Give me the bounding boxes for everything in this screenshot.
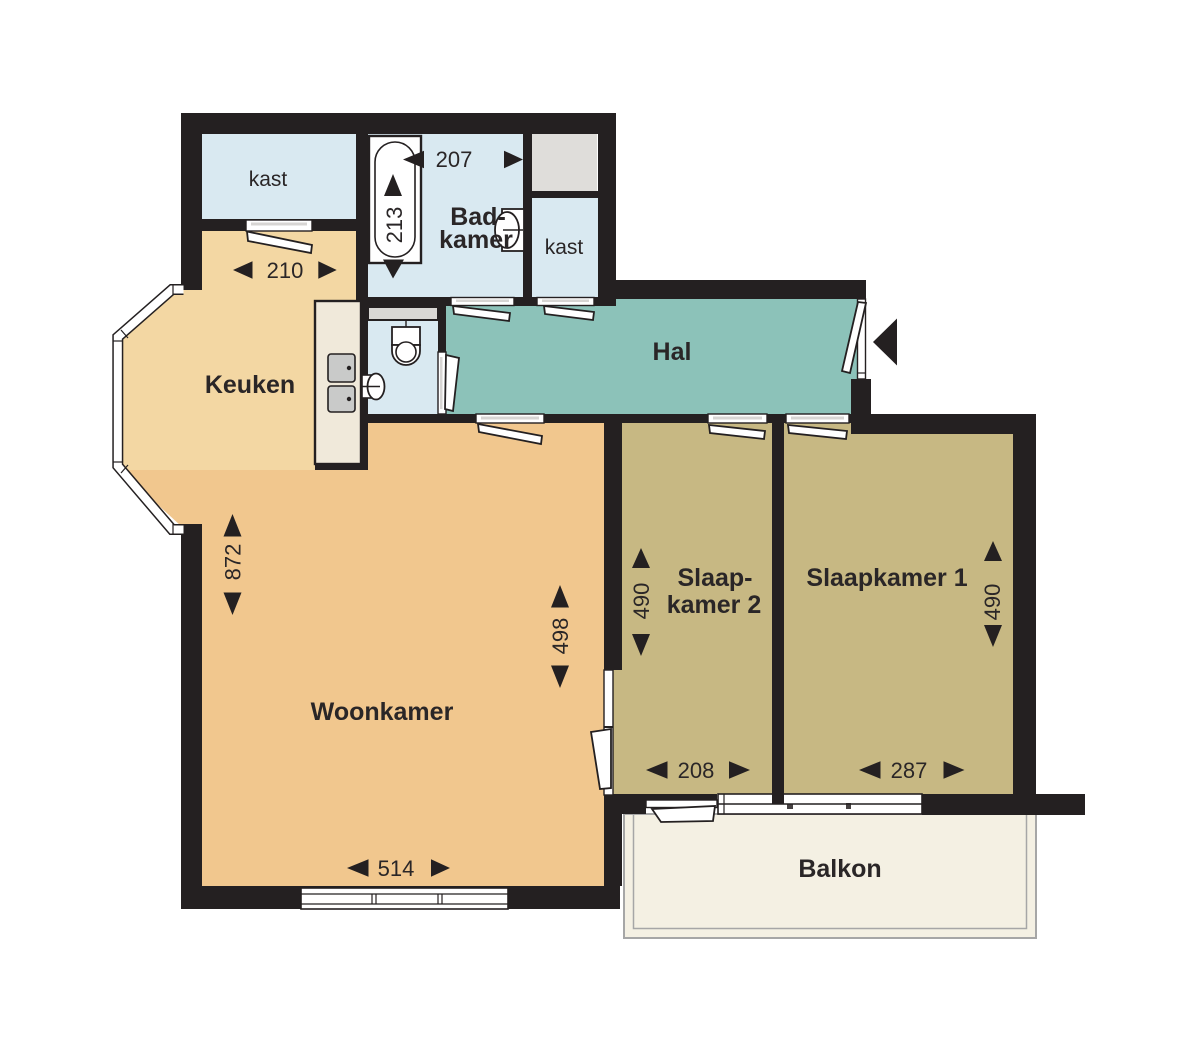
svg-text:kamer: kamer (439, 226, 513, 254)
svg-text:kast: kast (545, 236, 584, 259)
svg-text:kast: kast (249, 168, 288, 191)
svg-text:208: 208 (678, 758, 715, 783)
svg-text:287: 287 (891, 758, 928, 783)
svg-text:Slaapkamer 1: Slaapkamer 1 (806, 564, 967, 592)
svg-text:213: 213 (382, 207, 407, 244)
svg-text:kamer 2: kamer 2 (667, 591, 762, 619)
svg-text:490: 490 (980, 584, 1005, 621)
svg-text:514: 514 (378, 856, 415, 881)
svg-text:210: 210 (267, 258, 304, 283)
svg-text:Slaap-: Slaap- (677, 564, 752, 592)
svg-text:872: 872 (221, 544, 246, 581)
svg-text:Woonkamer: Woonkamer (311, 698, 454, 726)
svg-text:490: 490 (629, 583, 654, 620)
svg-text:207: 207 (436, 147, 473, 172)
svg-text:Hal: Hal (653, 338, 692, 366)
svg-text:498: 498 (548, 618, 573, 655)
svg-text:Keuken: Keuken (205, 371, 295, 399)
svg-text:Balkon: Balkon (798, 855, 881, 883)
